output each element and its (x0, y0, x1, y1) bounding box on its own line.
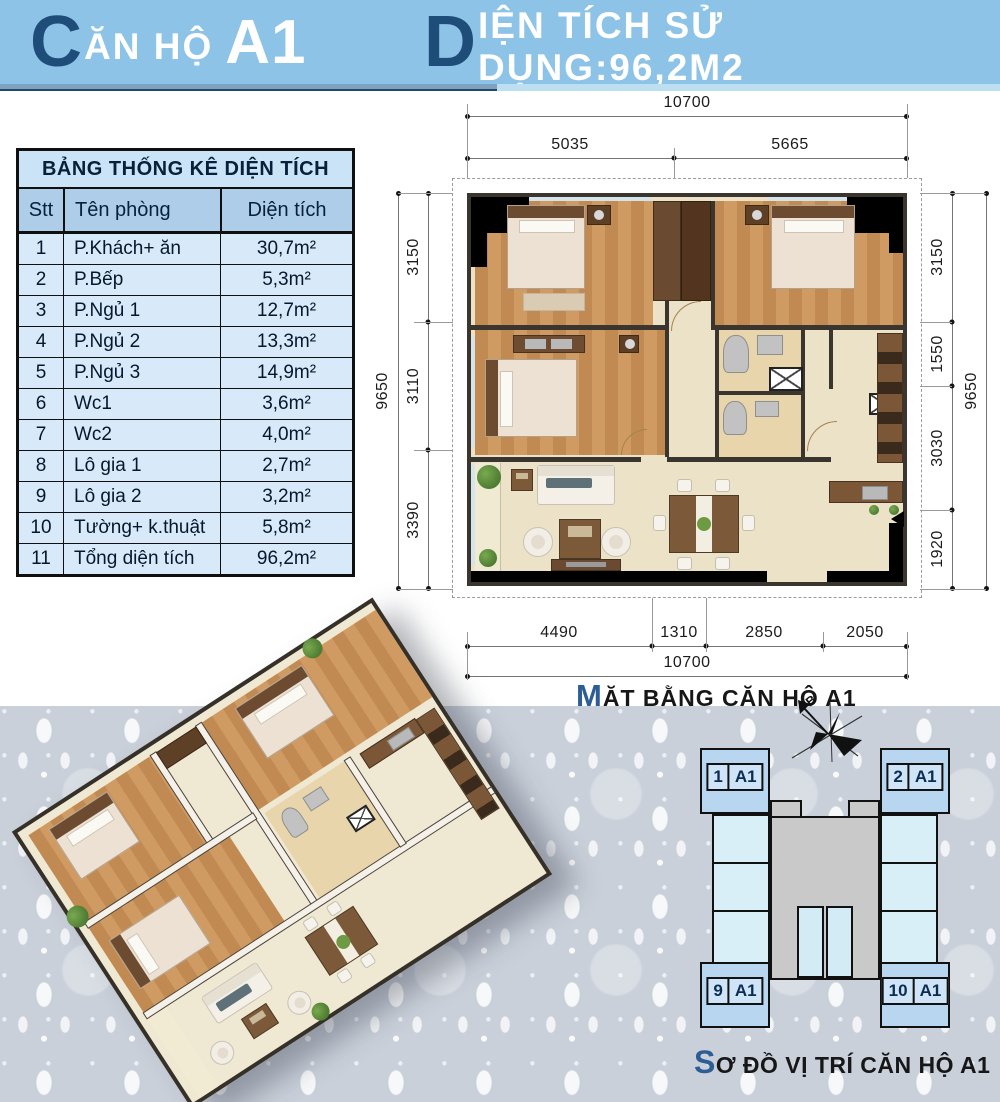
table-cell: 3,6m² (220, 389, 352, 419)
table-cell: P.Ngủ 3 (63, 358, 220, 388)
unit-block-2A1: 2 A1 (880, 748, 950, 814)
cabinet (513, 335, 585, 353)
bed (485, 359, 577, 437)
dim-right-seg-1: 3150 (929, 238, 947, 276)
iso-plant (308, 999, 333, 1024)
table-row: 10Tường+ k.thuật5,8m² (19, 512, 352, 543)
table-cell: 13,3m² (220, 327, 352, 357)
dim-left-total: 9650 (374, 372, 392, 410)
dim-line-top-segments (467, 158, 907, 159)
area-table: BẢNG THỐNG KÊ DIỆN TÍCH Stt Tên phòng Di… (16, 148, 355, 577)
table-cell: P.Bếp (63, 265, 220, 295)
dim-right-seg-4: 1920 (929, 530, 947, 568)
apartment-title-text: ĂN HỘ (84, 26, 213, 68)
dining-chair (677, 479, 692, 492)
witness-line (920, 322, 952, 323)
wing-cell (712, 862, 770, 912)
dim-line-right-segments (952, 193, 953, 589)
dining-chair (715, 479, 730, 492)
table-row: 3P.Ngủ 112,7m² (19, 295, 352, 326)
table-row: 7Wc24,0m² (19, 419, 352, 450)
wing-cell (880, 910, 938, 964)
wardrobe (653, 201, 681, 301)
rug (523, 293, 585, 311)
building-core-tab (848, 800, 880, 818)
dim-bottom-total: 10700 (664, 654, 711, 672)
table-cell: 2,7m² (220, 451, 352, 481)
table-cell: 5 (19, 358, 63, 388)
table-cell: 3 (19, 296, 63, 326)
area-title-text: IỆN TÍCH SỬ DỤNG:96,2M2 (478, 5, 996, 89)
dim-left-seg-2: 3110 (405, 368, 423, 404)
table-cell: 7 (19, 420, 63, 450)
apartment-unit-code: A1 (225, 7, 306, 78)
building-core (770, 816, 880, 980)
unit-block-9A1: 9 A1 (700, 962, 770, 1028)
witness-line (398, 589, 453, 590)
witness-line (823, 632, 824, 652)
shaft-box (769, 367, 803, 391)
dim-right-seg-3: 3030 (929, 429, 947, 467)
table-cell: 6 (19, 389, 63, 419)
window (471, 465, 475, 565)
dim-top-seg-1: 5035 (551, 136, 589, 154)
wall (471, 457, 641, 462)
witness-line (907, 104, 908, 178)
plant (479, 549, 497, 567)
dining-chair (715, 557, 730, 570)
witness-line (414, 450, 453, 451)
table-row: 1P.Khách+ ăn30,7m² (19, 233, 352, 264)
table-row: 2P.Bếp5,3m² (19, 264, 352, 295)
unit-type: A1 (910, 765, 942, 789)
wall (471, 325, 665, 330)
table-cell: 30,7m² (220, 234, 352, 264)
wall (829, 329, 833, 389)
table-cell: 5,3m² (220, 265, 352, 295)
witness-line (706, 598, 707, 652)
wall (711, 201, 715, 325)
dim-right-seg-2: 1550 (929, 335, 947, 373)
iso-balcony (147, 1006, 218, 1098)
witness-line (907, 632, 908, 680)
dining-table (669, 495, 739, 553)
area-table-header: Stt Tên phòng Diện tích (19, 189, 352, 233)
header-bar: C ĂN HỘ A1 D IỆN TÍCH SỬ DỤNG:96,2M2 (0, 0, 1000, 84)
door-arc (671, 301, 701, 331)
caption-initial: S (694, 1044, 716, 1080)
armchair (601, 527, 631, 557)
tv-cabinet (551, 559, 621, 571)
wall (667, 457, 831, 462)
dim-line-left-segments (428, 193, 429, 589)
col-header-room: Tên phòng (63, 189, 220, 231)
apartment-title: C ĂN HỘ A1 (30, 0, 307, 84)
iso-wardrobe (156, 726, 207, 769)
window (767, 197, 847, 201)
witness-line (920, 510, 952, 511)
table-row: 8Lô gia 12,7m² (19, 450, 352, 481)
table-cell: Wc1 (63, 389, 220, 419)
unit-number: 1 (708, 765, 729, 789)
table-row: 4P.Ngủ 213,3m² (19, 326, 352, 357)
nightstand (619, 335, 639, 353)
table-cell: Tường+ k.thuật (63, 513, 220, 543)
table-cell: 3,2m² (220, 482, 352, 512)
witness-line (467, 104, 468, 178)
bed (507, 205, 585, 289)
witness-line (652, 598, 653, 652)
table-cell: 9 (19, 482, 63, 512)
toilet (723, 401, 747, 435)
shower (723, 335, 749, 373)
area-title-initial: D (424, 0, 476, 84)
building-core-tab (770, 800, 802, 818)
unit-number: 10 (884, 979, 915, 1003)
unit-label: 1 A1 (706, 763, 763, 791)
witness-line (920, 193, 986, 194)
table-cell: 2 (19, 265, 63, 295)
kitchen-counter (877, 333, 903, 463)
elevator-cell (797, 906, 824, 978)
table-cell: P.Ngủ 1 (63, 296, 220, 326)
table-cell: Wc2 (63, 420, 220, 450)
table-cell: Lô gia 1 (63, 451, 220, 481)
unit-type: A1 (730, 765, 762, 789)
unit-type: A1 (730, 979, 762, 1003)
table-cell: 96,2m² (220, 544, 352, 574)
wall (711, 325, 903, 330)
poster: C ĂN HỘ A1 D IỆN TÍCH SỬ DỤNG:96,2M2 BẢN… (0, 0, 1000, 1102)
iso-kitchen-counter (416, 708, 500, 821)
table-row: 11Tổng diện tích96,2m² (19, 543, 352, 574)
sink (755, 401, 779, 417)
window (529, 197, 651, 201)
entry-arrow-icon (891, 511, 904, 527)
plant (869, 505, 879, 515)
table-cell: P.Khách+ ăn (63, 234, 220, 264)
dining-chair (653, 515, 666, 531)
area-title: D IỆN TÍCH SỬ DỤNG:96,2M2 (424, 0, 1000, 84)
dim-bottom-seg-3: 2850 (745, 624, 783, 642)
dim-left-seg-3: 3390 (405, 501, 423, 539)
coffee-table (559, 519, 601, 559)
unit-number: 2 (888, 765, 909, 789)
col-header-stt: Stt (19, 189, 63, 231)
table-cell: P.Ngủ 2 (63, 327, 220, 357)
bottom-wall (471, 571, 767, 582)
table-cell: 4,0m² (220, 420, 352, 450)
header-strip-right (497, 84, 1000, 91)
iso-render (10, 612, 555, 1094)
unit-label: 9 A1 (706, 977, 763, 1005)
witness-line (920, 386, 952, 387)
unit-block-1A1: 1 A1 (700, 748, 770, 814)
dim-left-seg-1: 3150 (405, 238, 423, 276)
location-diagram: 1 A1 2 A1 9 A1 10 A1 (700, 748, 950, 1030)
table-row: 5P.Ngủ 314,9m² (19, 357, 352, 388)
door-arc (807, 421, 837, 451)
table-cell: 5,8m² (220, 513, 352, 543)
iso-coffee-table (241, 1003, 279, 1039)
witness-line (398, 193, 453, 194)
iso-floor-plan (12, 598, 552, 1102)
table-cell: 1 (19, 234, 63, 264)
apartment-title-initial: C (30, 0, 82, 84)
dim-line-left-total (398, 193, 399, 589)
wing-cell (880, 862, 938, 912)
location-caption: SƠ ĐỒ VỊ TRÍ CĂN HỘ A1 (694, 1044, 990, 1081)
witness-line (920, 589, 986, 590)
dim-top-seg-2: 5665 (771, 136, 809, 154)
witness-line (414, 322, 453, 323)
table-cell: 14,9m² (220, 358, 352, 388)
dim-line-top-total (467, 116, 907, 117)
dim-top-total: 10700 (664, 94, 711, 112)
dim-line-right-total (986, 193, 987, 589)
unit-block-10A1: 10 A1 (880, 962, 950, 1028)
dining-chair (742, 515, 755, 531)
window (471, 337, 475, 447)
dim-bottom-seg-2: 1310 (660, 624, 698, 642)
area-table-title: BẢNG THỐNG KÊ DIỆN TÍCH (19, 151, 352, 189)
unit-type: A1 (915, 979, 947, 1003)
table-cell: Lô gia 2 (63, 482, 220, 512)
wing-cell (712, 814, 770, 864)
kitchen-counter (829, 481, 903, 503)
armchair (523, 527, 553, 557)
floor-plan (467, 193, 907, 586)
table-cell: 8 (19, 451, 63, 481)
unit-number: 9 (708, 979, 729, 1003)
header-strip-left (0, 84, 497, 91)
caption-text: Ơ ĐỒ VỊ TRÍ CĂN HỘ A1 (716, 1052, 991, 1078)
sink (757, 335, 783, 355)
side-table (511, 469, 533, 491)
sofa (537, 465, 615, 505)
elevator-cell (826, 906, 853, 978)
col-header-area: Diện tích (220, 189, 352, 231)
wall (801, 329, 805, 457)
dim-bottom-seg-4: 2050 (846, 624, 884, 642)
nightstand (587, 205, 611, 225)
nightstand (745, 205, 769, 225)
corner-block (471, 197, 487, 267)
table-cell: 10 (19, 513, 63, 543)
dim-right-total: 9650 (963, 372, 981, 410)
wardrobe (681, 201, 711, 301)
table-cell: 4 (19, 327, 63, 357)
corner-block (889, 197, 903, 253)
plant (477, 465, 501, 489)
table-row: 9Lô gia 23,2m² (19, 481, 352, 512)
table-cell: Tổng diện tích (63, 544, 220, 574)
bed (771, 205, 855, 289)
corner-block (889, 523, 903, 582)
table-cell: 12,7m² (220, 296, 352, 326)
wing-cell (712, 910, 770, 964)
dining-chair (677, 557, 692, 570)
table-cell: 11 (19, 544, 63, 574)
iso-armchair (206, 1036, 239, 1069)
wing-cell (880, 814, 938, 864)
area-table-body: 1P.Khách+ ăn30,7m²2P.Bếp5,3m²3P.Ngủ 112,… (19, 233, 352, 574)
witness-line (674, 148, 675, 178)
table-row: 6Wc13,6m² (19, 388, 352, 419)
unit-label: 10 A1 (882, 977, 949, 1005)
wall (719, 391, 801, 395)
unit-label: 2 A1 (886, 763, 943, 791)
